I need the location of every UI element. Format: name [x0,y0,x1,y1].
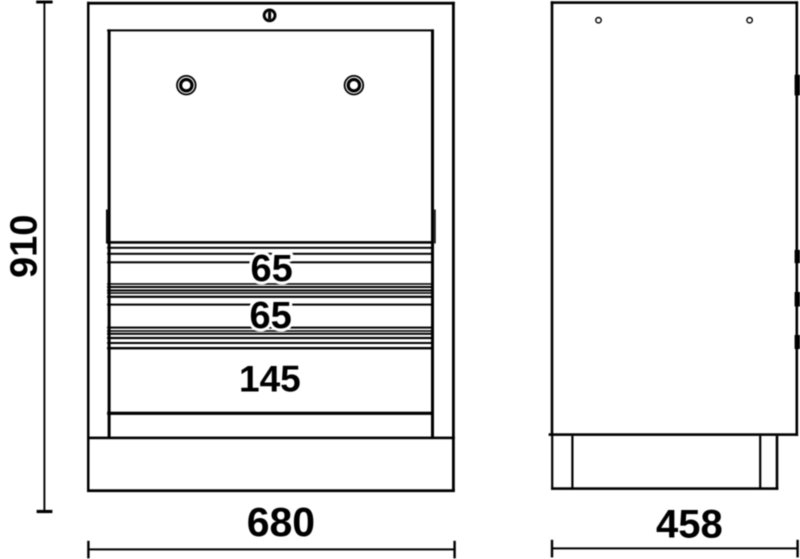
svg-text:65: 65 [250,248,292,290]
svg-text:145: 145 [239,359,301,400]
svg-text:680: 680 [247,499,315,545]
svg-text:458: 458 [656,502,723,546]
svg-text:65: 65 [249,295,291,337]
svg-text:910: 910 [3,215,45,278]
